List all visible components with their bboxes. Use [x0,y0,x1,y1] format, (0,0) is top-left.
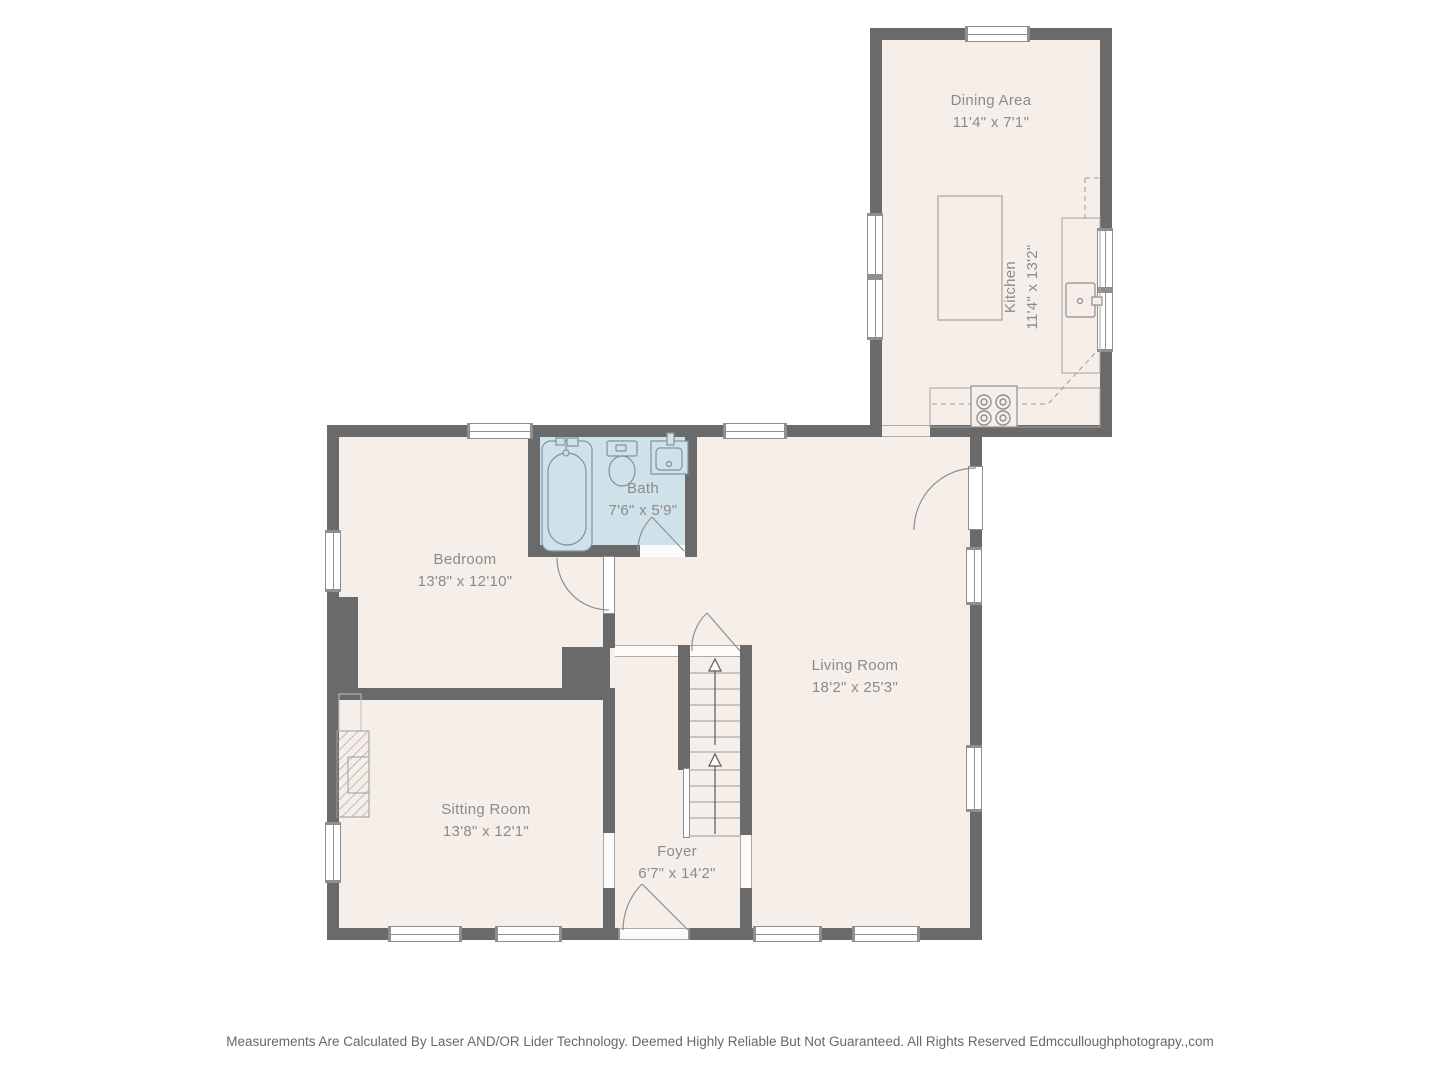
window [723,423,787,439]
bath-wall [528,437,540,557]
room-name: Dining Area [891,90,1091,112]
stairs-wall [740,645,752,835]
room-dims: 13'8" x 12'10" [365,571,565,593]
room-label-dining: Dining Area 11'4" x 7'1" [891,90,1091,134]
room-dims: 11'4" x 13'2" [1022,217,1044,357]
window [867,213,883,277]
sitting-foyer-wall [603,700,615,833]
room-name: Bath [573,478,713,500]
bath-door-opening [640,545,685,557]
room-label-kitchen: Kitchen 11'4" x 13'2" [1000,217,1044,357]
entry-door-opening [618,928,690,940]
room-name: Foyer [577,841,777,863]
kitchen-opening [882,425,930,437]
window [495,926,562,942]
window [753,926,822,942]
room-name: Sitting Room [386,799,586,821]
window [852,926,920,942]
window [467,423,533,439]
window [1097,290,1113,352]
window [966,745,982,812]
window [965,26,1030,42]
bedroom-wall [327,688,615,700]
wall [327,425,882,437]
bedroom-door-leaf [603,556,615,614]
sitting-foyer-wall [603,888,615,928]
room-label-foyer: Foyer 6'7" x 14'2" [577,841,777,885]
disclaimer-text: Measurements Are Calculated By Laser AND… [0,1034,1440,1049]
wall [930,425,1112,437]
room-name: Bedroom [365,549,565,571]
stairs-wall [678,645,690,770]
hall-foyer-opening [615,645,678,657]
window [1097,228,1113,290]
room-dims: 6'7" x 14'2" [577,863,777,885]
window [867,277,883,340]
room-label-sitting: Sitting Room 13'8" x 12'1" [386,799,586,843]
window [325,530,341,592]
room-name: Living Room [755,655,955,677]
floor-plan: Dining Area 11'4" x 7'1" Kitchen 11'4" x… [0,0,1440,1080]
stairs-door-threshold [690,645,740,657]
room-dims: 13'8" x 12'1" [386,821,586,843]
window [966,547,982,605]
foyer-living-wall [740,888,752,928]
stairs-railing [683,768,690,838]
room-dims: 18'2" x 25'3" [755,677,955,699]
window [388,926,462,942]
room-dims: 11'4" x 7'1" [891,112,1091,134]
side-door-leaf [968,466,983,530]
room-label-bath: Bath 7'6" x 5'9" [573,478,713,522]
window [325,822,341,883]
bedroom-closet-wall [327,597,358,690]
hall-wall [603,612,615,648]
room-dims: 7'6" x 5'9" [573,500,713,522]
room-label-living: Living Room 18'2" x 25'3" [755,655,955,699]
chimney-mass [562,647,610,692]
room-name: Kitchen [1000,217,1022,357]
room-label-bedroom: Bedroom 13'8" x 12'10" [365,549,565,593]
